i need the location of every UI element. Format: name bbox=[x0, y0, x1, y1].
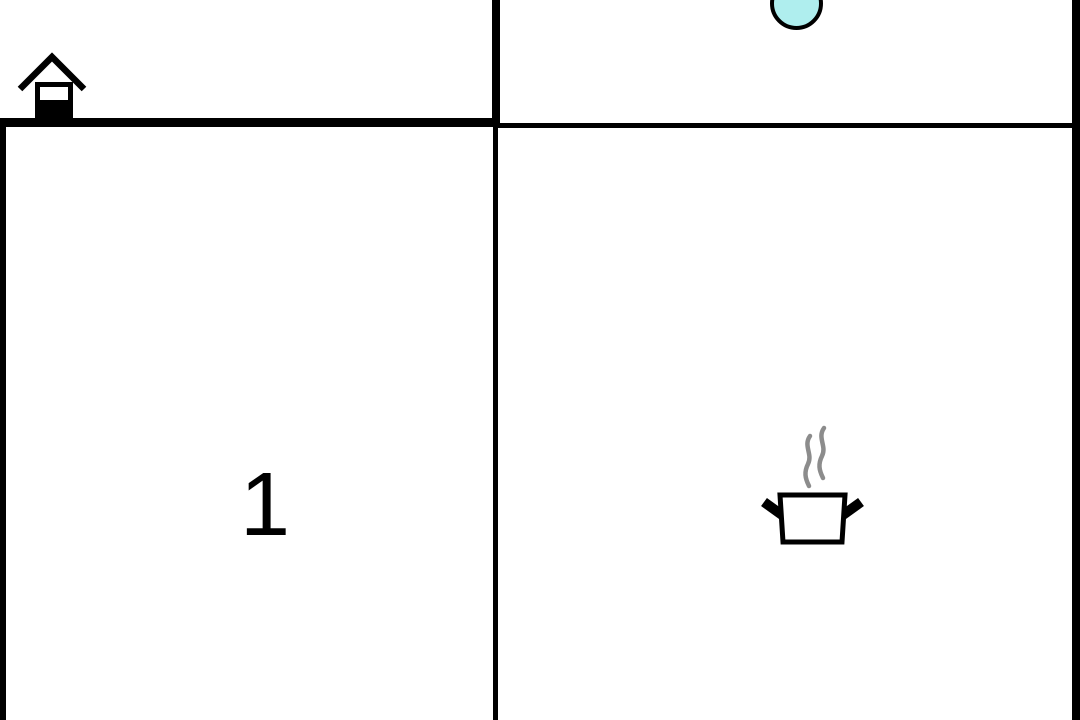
floorplan-canvas: 1 bbox=[0, 0, 1080, 720]
pot-body bbox=[780, 495, 845, 542]
home-icon bbox=[17, 52, 87, 120]
wall-right-border bbox=[1072, 0, 1080, 720]
home-window bbox=[40, 87, 68, 100]
steam-wisp-right bbox=[819, 428, 824, 478]
steam-wisp-left bbox=[805, 436, 810, 486]
room-bottom-left bbox=[6, 127, 493, 720]
wall-top-vertical-divider bbox=[492, 0, 500, 127]
room-number-label: 1 bbox=[220, 455, 310, 555]
pot-with-steam-icon bbox=[755, 420, 875, 550]
